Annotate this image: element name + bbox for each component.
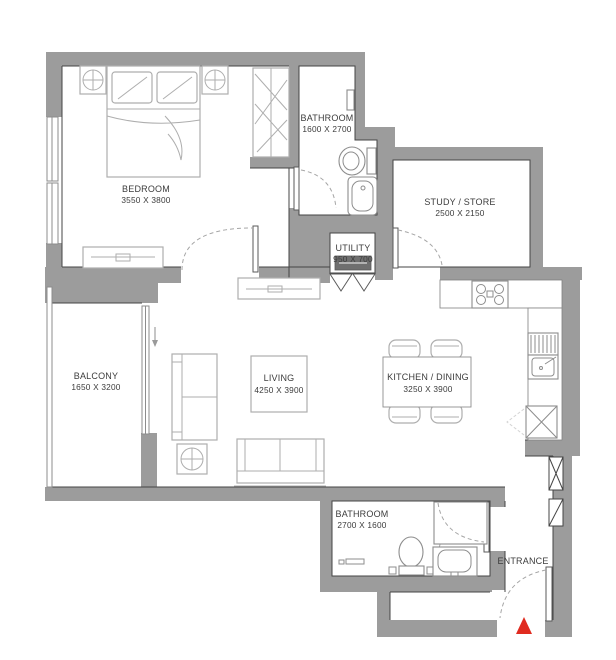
- wall-study-top: [385, 147, 543, 160]
- wall-kitchen-right: [562, 267, 580, 442]
- study-dims: 2500 X 2150: [435, 208, 484, 218]
- ensuite-label: BATHROOM: [301, 113, 354, 123]
- wall-balcony-top: [45, 283, 158, 303]
- utility-bifold-door-1: [330, 274, 352, 291]
- shower: [434, 502, 487, 544]
- wall-bath-bottom: [320, 576, 492, 592]
- wall-kitchen-top: [440, 267, 582, 280]
- dining-chair-1: [389, 340, 420, 359]
- balcony-label: BALCONY: [74, 371, 118, 381]
- wall-bottom-right: [545, 620, 572, 637]
- dining-table: [383, 357, 471, 407]
- study-door-leaf: [393, 228, 398, 268]
- main-bath-label: BATHROOM: [336, 509, 389, 519]
- bedroom-door-swing-arc: [182, 228, 252, 270]
- hob-icon: [472, 281, 508, 308]
- balcony-dims: 1650 X 3200: [71, 382, 120, 392]
- wall-bath-left: [320, 501, 332, 576]
- pillow-left: [112, 72, 152, 103]
- ensuite-door-leaf: [294, 167, 299, 210]
- wall-bedroom-bottom-left: [45, 267, 181, 283]
- wall-bottom-mid: [477, 620, 497, 637]
- ensuite-dims: 1600 X 2700: [302, 124, 351, 134]
- toilet-bowl-main: [399, 537, 423, 567]
- living-furniture: [172, 278, 326, 486]
- wall-left-upper: [46, 66, 62, 117]
- towel-rail-icon: [347, 90, 354, 110]
- wall-hall-left: [377, 585, 390, 637]
- main-bath-dims: 2700 X 1600: [337, 520, 386, 530]
- kitchen-dims: 3250 X 3900: [403, 384, 452, 394]
- utility-dims: 950 X 700: [333, 254, 373, 264]
- balcony-rail: [47, 287, 52, 487]
- wall-ensuite-bottom: [289, 215, 377, 233]
- washing-machine-swing: [507, 409, 524, 435]
- entrance-door-leaf: [546, 567, 552, 621]
- wall-living-bottom: [45, 487, 505, 501]
- entrance-door-swing-arc: [500, 570, 546, 618]
- entrance-label: ENTRANCE: [497, 556, 548, 566]
- toilet-tank-main: [399, 566, 424, 575]
- toilet-tank-ensuite: [367, 148, 376, 174]
- bedroom-dims: 3550 X 3800: [121, 195, 170, 205]
- utility-bifold-door-2: [353, 274, 375, 291]
- sink-drainer-ridges: [531, 335, 555, 353]
- pillow-right: [157, 72, 197, 103]
- bedroom-label: BEDROOM: [122, 184, 170, 194]
- kitchen-label: KITCHEN / DINING: [387, 372, 469, 382]
- wall-top: [46, 52, 363, 66]
- slider-arrow-icon: [152, 340, 158, 347]
- bedroom-door-leaf: [253, 226, 258, 272]
- floor-plan-canvas: BEDROOM 3550 X 3800 BATHROOM 1600 X 2700…: [0, 0, 616, 660]
- wall-bottom-left: [390, 620, 477, 637]
- entrance-marker-icon: [516, 617, 532, 634]
- wall-ensuite-left-upper: [289, 66, 299, 168]
- wall-study-right: [530, 147, 543, 267]
- wall-slider-block: [141, 433, 157, 487]
- living-label-box: [251, 356, 307, 412]
- living-dims: 4250 X 3900: [254, 385, 303, 395]
- wall-bath-right-stub: [490, 501, 505, 507]
- wall-utility-right: [375, 215, 393, 280]
- wall-below-wardrobe: [250, 157, 299, 168]
- study-label: STUDY / STORE: [424, 197, 495, 207]
- wall-ensuite-right: [355, 52, 365, 140]
- dining-chair-2: [431, 340, 462, 359]
- floor-plan-svg: BEDROOM 3550 X 3800 BATHROOM 1600 X 2700…: [0, 0, 616, 660]
- utility-label: UTILITY: [336, 243, 371, 253]
- wall-kitchen-step: [525, 440, 580, 456]
- living-label: LIVING: [264, 373, 295, 383]
